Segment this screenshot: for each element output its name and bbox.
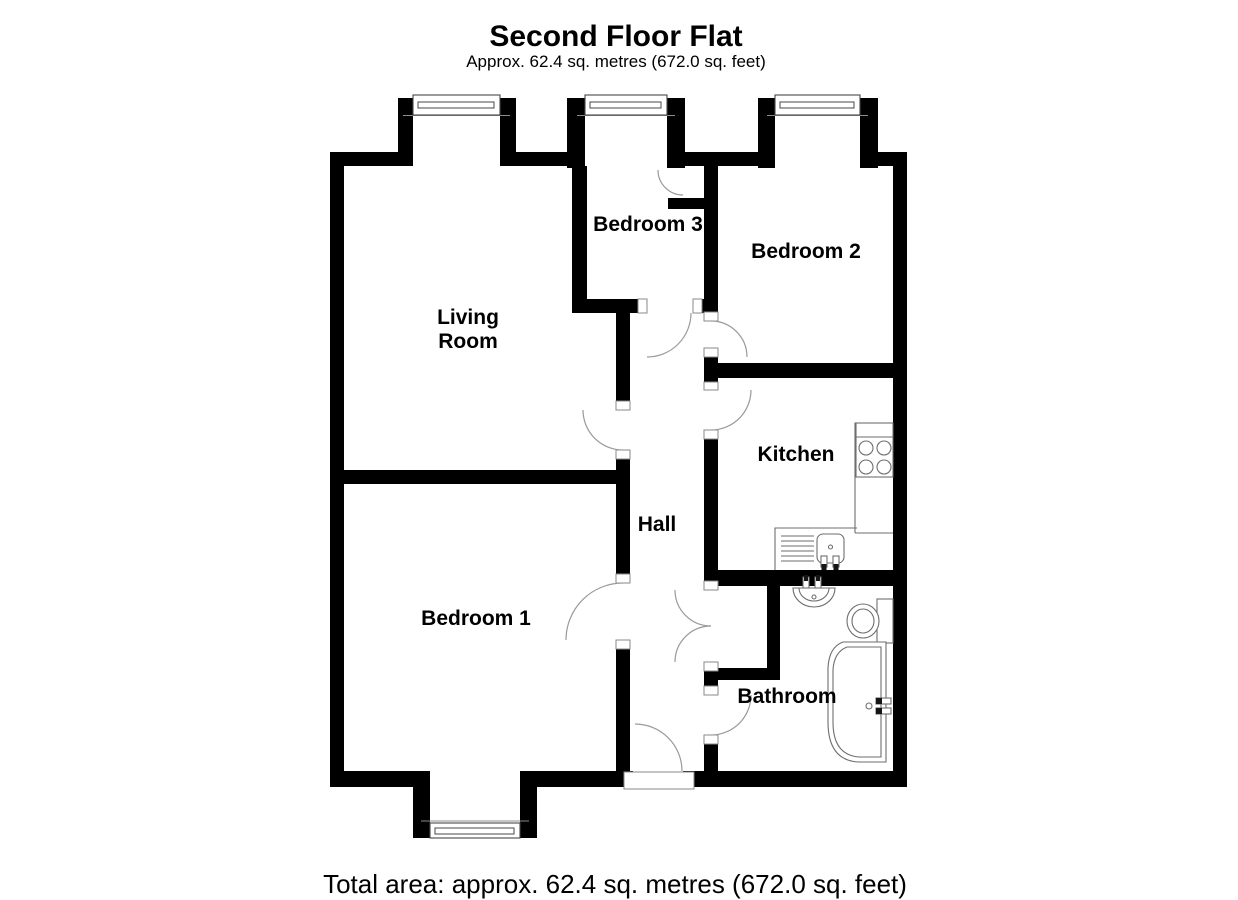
closet-door-bottom-arc — [675, 626, 711, 662]
hob-icon — [856, 423, 893, 477]
room-label-bedroom3: Bedroom 3 — [593, 213, 703, 236]
room-label-living-room-line2: Room — [438, 330, 498, 353]
bedroom3-window — [577, 95, 675, 116]
toilet-icon — [847, 599, 893, 643]
floorplan-canvas: Second Floor Flat Approx. 62.4 sq. metre… — [0, 0, 1238, 900]
kitchen-door-arc — [711, 390, 751, 430]
page-title: Second Floor Flat — [489, 20, 742, 53]
door-jambs — [616, 299, 718, 789]
kitchen-counter — [855, 423, 893, 533]
room-label-bedroom1: Bedroom 1 — [421, 607, 531, 630]
bedroom2-window — [767, 95, 868, 116]
page-subtitle: Approx. 62.4 sq. metres (672.0 sq. feet) — [466, 52, 766, 71]
kitchen-sink-icon — [775, 528, 857, 570]
room-label-bathroom: Bathroom — [737, 685, 836, 708]
bedroom3-door-arc — [647, 313, 691, 357]
room-label-hall: Hall — [638, 513, 677, 536]
room-label-kitchen: Kitchen — [757, 443, 834, 466]
room-label-living-room-line1: Living — [437, 306, 499, 329]
walls — [330, 98, 907, 838]
closet-door-top-arc — [675, 590, 711, 626]
bedroom1-door-arc — [566, 583, 623, 640]
entrance-door-arc — [635, 724, 682, 771]
bedroom3-cupboard-door-arc — [658, 170, 683, 195]
room-label-bedroom2: Bedroom 2 — [751, 240, 861, 263]
total-area-text: Total area: approx. 62.4 sq. metres (672… — [323, 869, 907, 899]
bedroom1-window — [421, 821, 529, 838]
living-room-window — [403, 95, 510, 116]
bathtub-icon — [828, 642, 891, 762]
floorplan-page: Second Floor Flat Approx. 62.4 sq. metre… — [0, 0, 1238, 900]
entrance-threshold — [624, 772, 694, 789]
living-room-door-arc — [583, 410, 623, 450]
